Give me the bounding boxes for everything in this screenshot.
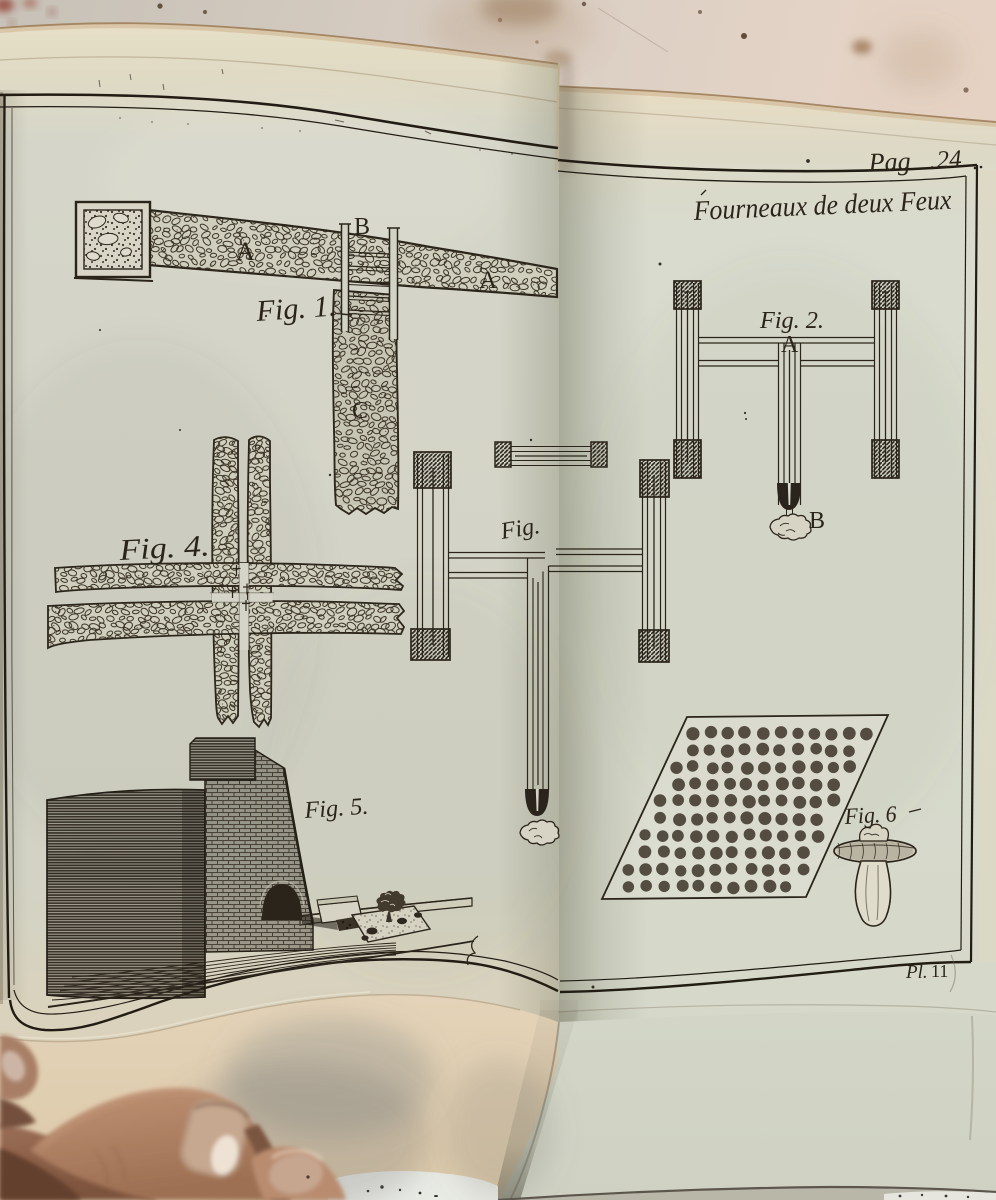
svg-text:Fig. 4.: Fig. 4. bbox=[118, 529, 211, 567]
svg-text:A: A bbox=[236, 237, 255, 266]
svg-text:B: B bbox=[354, 214, 370, 240]
svg-text:Fig. 2.: Fig. 2. bbox=[759, 308, 824, 334]
svg-text:24: 24 bbox=[936, 146, 962, 174]
svg-text:Fig. 6: Fig. 6 bbox=[843, 801, 898, 829]
svg-text:A: A bbox=[781, 332, 799, 358]
svg-text:A: A bbox=[479, 267, 497, 294]
svg-text:C: C bbox=[352, 398, 368, 424]
svg-text:Pag: Pag bbox=[867, 147, 911, 177]
svg-text:Fig. 5.: Fig. 5. bbox=[303, 794, 370, 824]
svg-text:.: . bbox=[929, 146, 936, 175]
svg-text:B: B bbox=[809, 508, 825, 534]
svg-text:11: 11 bbox=[931, 961, 948, 981]
svg-text:Fig. 1.: Fig. 1. bbox=[254, 289, 337, 328]
svg-text:Pl.: Pl. bbox=[905, 962, 928, 983]
